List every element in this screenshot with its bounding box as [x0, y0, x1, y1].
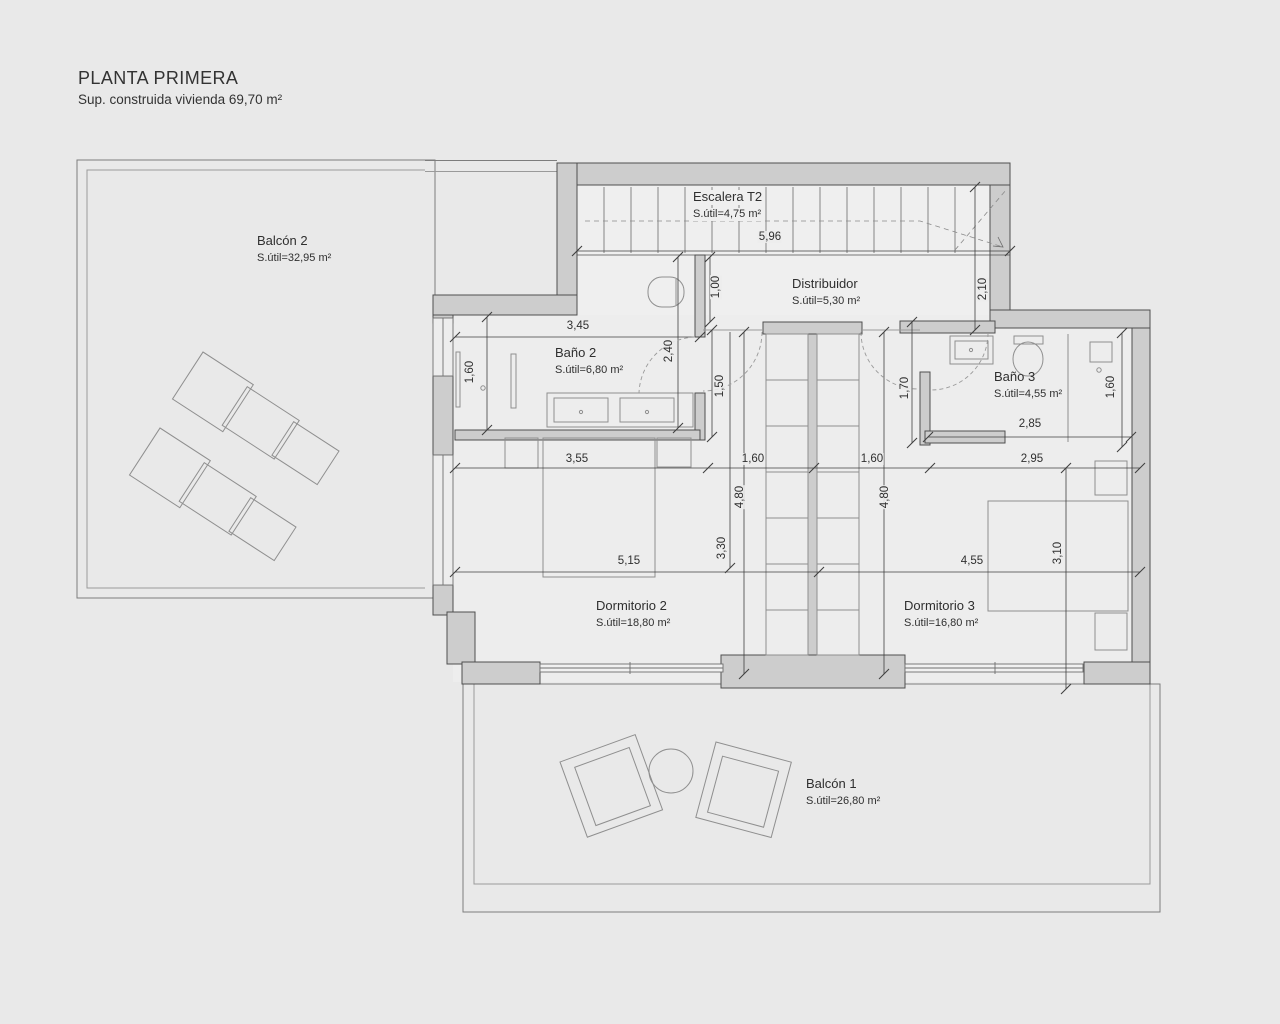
sun-lounger-1: [173, 352, 344, 490]
dim-label-150: 1,50: [714, 374, 726, 398]
balcony1-chair-2: [696, 742, 792, 838]
dim-label-160a: 1,60: [464, 360, 476, 384]
dim-label-345: 3,45: [566, 320, 590, 332]
page-title: PLANTA PRIMERA: [78, 68, 238, 89]
room-label-escalera: Escalera T2 S.útil=4,75 m²: [691, 190, 764, 221]
sun-lounger-2: [130, 428, 301, 566]
dim-label-310: 3,10: [1052, 541, 1064, 565]
dim-label-210: 2,10: [977, 277, 989, 301]
dim-label-160c: 1,60: [741, 453, 765, 465]
dim-label-100: 1,00: [710, 275, 722, 299]
page-subtitle: Sup. construida vivienda 69,70 m²: [78, 92, 282, 107]
dim-label-285: 2,85: [1018, 418, 1042, 430]
sliding-door-bedroom3: [905, 662, 1083, 674]
dim-label-480a: 4,80: [734, 485, 746, 509]
dim-label-295: 2,95: [1020, 453, 1044, 465]
dim-label-596: 5,96: [758, 231, 782, 243]
room-label-bano2: Baño 2 S.útil=6,80 m²: [555, 346, 623, 377]
sliding-door-bedroom2: [540, 662, 723, 674]
dim-label-160b: 1,60: [1105, 375, 1117, 399]
dim-label-240: 2,40: [663, 339, 675, 363]
dim-label-170: 1,70: [899, 376, 911, 400]
room-label-balcon2: Balcón 2 S.útil=32,95 m²: [257, 234, 331, 265]
dim-label-455: 4,55: [960, 555, 984, 567]
room-label-distribuidor: Distribuidor S.útil=5,30 m²: [792, 277, 860, 308]
floor-plan-drawing: [0, 0, 1280, 1024]
dim-label-160d: 1,60: [860, 453, 884, 465]
dim-label-355: 3,55: [565, 453, 589, 465]
window-bedroom2: [433, 455, 453, 585]
room-label-dormitorio3: Dormitorio 3 S.útil=16,80 m²: [904, 599, 978, 630]
room-label-bano3: Baño 3 S.útil=4,55 m²: [994, 370, 1062, 401]
room-label-balcon1: Balcón 1 S.útil=26,80 m²: [806, 777, 880, 808]
room-label-dormitorio2: Dormitorio 2 S.útil=18,80 m²: [596, 599, 670, 630]
dim-label-330: 3,30: [716, 536, 728, 560]
dim-label-515: 5,15: [617, 555, 641, 567]
balcony1-chair-1: [560, 735, 663, 838]
dim-label-480b: 4,80: [879, 485, 891, 509]
balcony1-table: [649, 749, 693, 793]
window-bathroom2: [433, 318, 453, 376]
floor-plan-page: PLANTA PRIMERA Sup. construida vivienda …: [0, 0, 1280, 1024]
